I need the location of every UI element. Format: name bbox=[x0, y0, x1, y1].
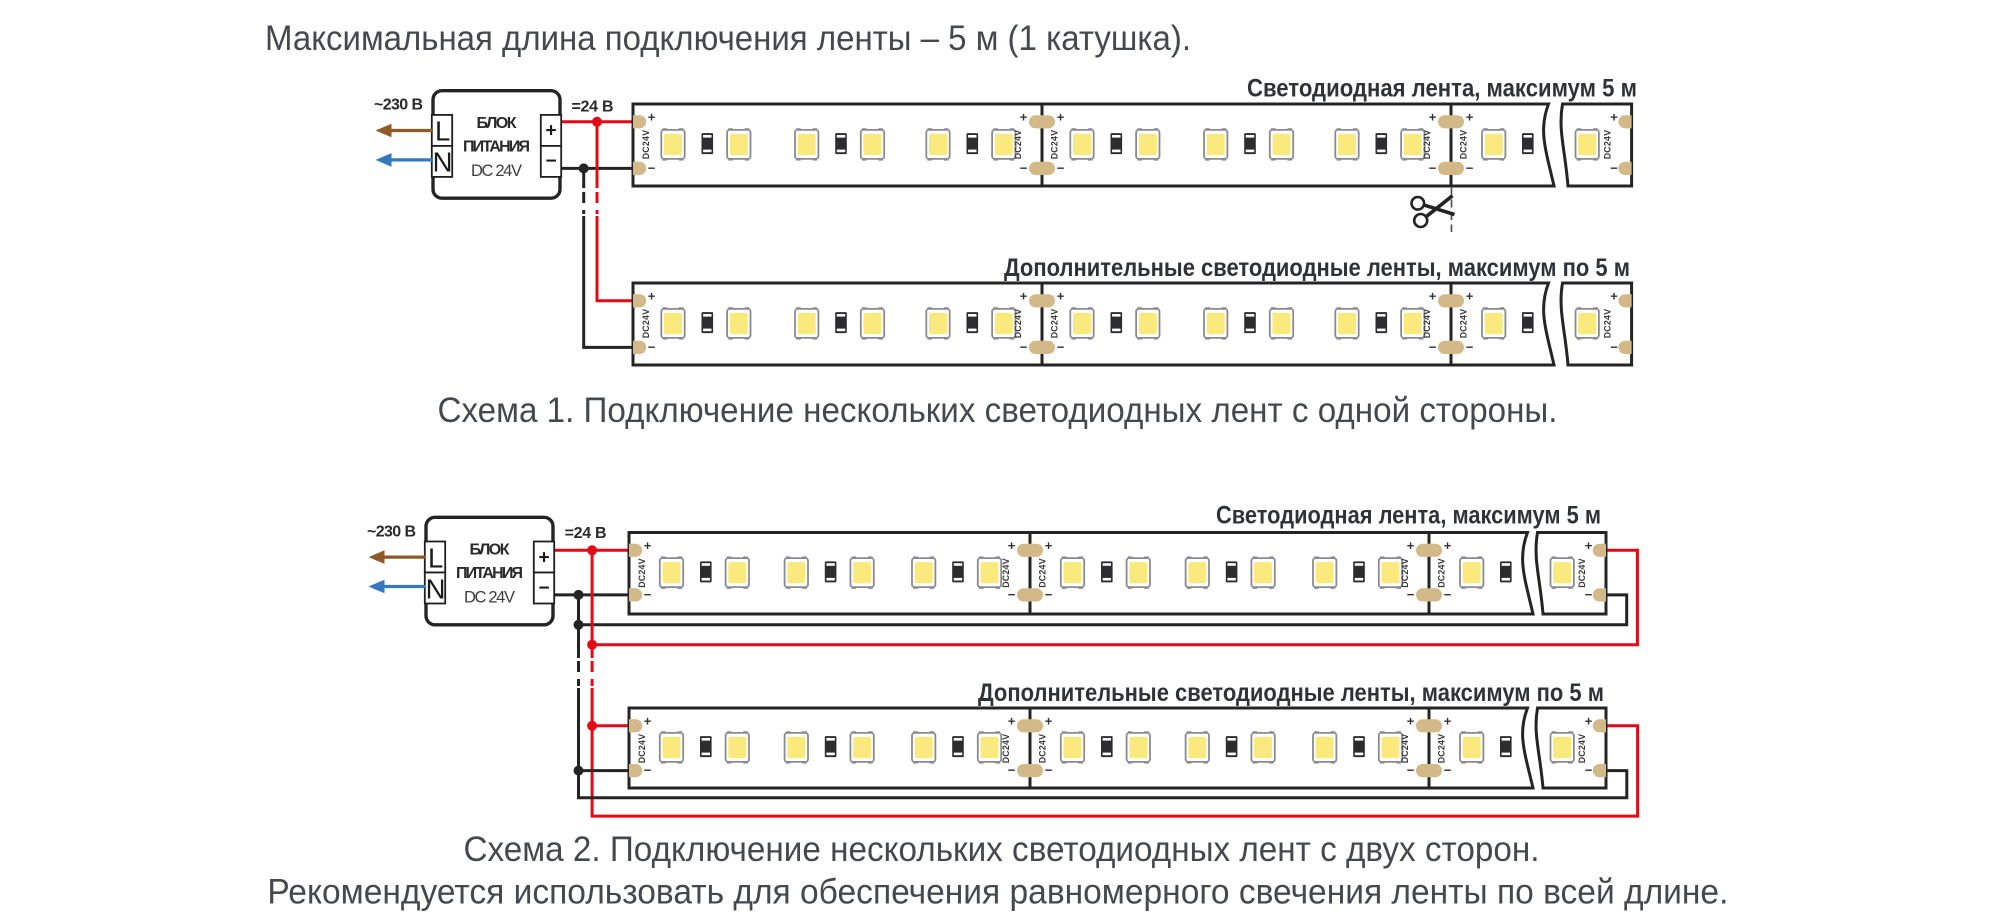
svg-text:−: − bbox=[644, 763, 652, 778]
svg-text:−: − bbox=[648, 160, 656, 175]
svg-text:−: − bbox=[1610, 339, 1618, 354]
svg-text:ПИТАНИЯ: ПИТАНИЯ bbox=[456, 565, 523, 582]
svg-text:DC24V: DC24V bbox=[1400, 734, 1410, 764]
svg-text:L: L bbox=[428, 542, 443, 573]
svg-text:L: L bbox=[435, 116, 450, 147]
svg-text:−: − bbox=[1610, 160, 1618, 175]
svg-text:+: + bbox=[1045, 538, 1053, 553]
svg-text:DC24V: DC24V bbox=[1013, 130, 1023, 160]
svg-text:+: + bbox=[1585, 538, 1593, 553]
svg-text:DC24V: DC24V bbox=[1577, 734, 1587, 764]
svg-text:DC24V: DC24V bbox=[1459, 309, 1469, 339]
svg-text:−: − bbox=[1045, 763, 1053, 778]
svg-text:Рекомендуется использовать для: Рекомендуется использовать для обеспечен… bbox=[267, 873, 1728, 912]
svg-text:−: − bbox=[1407, 587, 1415, 602]
svg-text:Максимальная длина подключения: Максимальная длина подключения ленты – 5… bbox=[265, 19, 1191, 58]
svg-text:~230 В: ~230 В bbox=[367, 523, 416, 540]
svg-text:+: + bbox=[1020, 289, 1028, 304]
svg-text:+: + bbox=[1429, 289, 1437, 304]
svg-text:−: − bbox=[1020, 339, 1028, 354]
svg-text:−: − bbox=[1008, 763, 1016, 778]
svg-text:БЛОК: БЛОК bbox=[477, 115, 517, 132]
svg-text:DC24V: DC24V bbox=[1050, 130, 1060, 160]
svg-text:DC24V: DC24V bbox=[1038, 734, 1048, 764]
svg-text:+: + bbox=[1444, 714, 1452, 729]
svg-text:+: + bbox=[644, 538, 652, 553]
svg-text:ПИТАНИЯ: ПИТАНИЯ bbox=[463, 138, 530, 155]
svg-text:−: − bbox=[545, 151, 556, 172]
svg-text:−: − bbox=[1585, 587, 1593, 602]
svg-text:DC 24V: DC 24V bbox=[464, 589, 515, 607]
svg-text:DC24V: DC24V bbox=[641, 130, 651, 160]
svg-text:DC24V: DC24V bbox=[1437, 558, 1447, 588]
svg-text:+: + bbox=[1444, 538, 1452, 553]
svg-text:−: − bbox=[1466, 339, 1474, 354]
svg-text:DC24V: DC24V bbox=[1577, 558, 1587, 588]
svg-text:Светодиодная лента, максимум 5: Светодиодная лента, максимум 5 м bbox=[1247, 75, 1637, 103]
svg-text:Дополнительные светодиодные ле: Дополнительные светодиодные ленты, макси… bbox=[978, 679, 1604, 707]
svg-text:+: + bbox=[1429, 110, 1437, 125]
svg-text:DC24V: DC24V bbox=[1437, 734, 1447, 764]
svg-text:DC24V: DC24V bbox=[1050, 309, 1060, 339]
svg-text:+: + bbox=[1057, 289, 1065, 304]
svg-text:DC24V: DC24V bbox=[1013, 309, 1023, 339]
svg-text:DC24V: DC24V bbox=[1603, 309, 1613, 339]
svg-text:+: + bbox=[545, 121, 556, 142]
svg-text:DC24V: DC24V bbox=[641, 309, 651, 339]
svg-text:+: + bbox=[1466, 289, 1474, 304]
svg-text:+: + bbox=[648, 289, 656, 304]
svg-text:N: N bbox=[426, 573, 446, 604]
svg-text:DC24V: DC24V bbox=[637, 558, 647, 588]
svg-text:+: + bbox=[1045, 714, 1053, 729]
svg-text:−: − bbox=[1045, 587, 1053, 602]
svg-text:−: − bbox=[1008, 587, 1016, 602]
svg-text:−: − bbox=[1444, 587, 1452, 602]
svg-text:+: + bbox=[1610, 289, 1618, 304]
svg-text:+: + bbox=[1008, 538, 1016, 553]
svg-text:Дополнительные светодиодные ле: Дополнительные светодиодные ленты, макси… bbox=[1004, 254, 1630, 282]
svg-text:+: + bbox=[1466, 110, 1474, 125]
svg-text:Схема 1. Подключение нескольки: Схема 1. Подключение нескольких светодио… bbox=[438, 391, 1558, 430]
svg-text:+: + bbox=[648, 110, 656, 125]
svg-text:−: − bbox=[1429, 160, 1437, 175]
svg-text:Схема 2. Подключение нескольки: Схема 2. Подключение нескольких светодио… bbox=[464, 830, 1540, 869]
svg-text:DC24V: DC24V bbox=[1422, 309, 1432, 339]
svg-text:−: − bbox=[1407, 763, 1415, 778]
svg-text:БЛОК: БЛОК bbox=[470, 542, 510, 559]
svg-text:DC24V: DC24V bbox=[1459, 130, 1469, 160]
svg-text:+: + bbox=[644, 714, 652, 729]
svg-text:−: − bbox=[1057, 160, 1065, 175]
svg-text:+: + bbox=[1407, 538, 1415, 553]
svg-text:~230 В: ~230 В bbox=[374, 97, 423, 114]
svg-text:−: − bbox=[1585, 763, 1593, 778]
svg-text:−: − bbox=[1429, 339, 1437, 354]
svg-text:+: + bbox=[1585, 714, 1593, 729]
svg-text:N: N bbox=[433, 147, 453, 178]
svg-text:−: − bbox=[1057, 339, 1065, 354]
svg-text:=24 В: =24 В bbox=[565, 525, 607, 542]
svg-text:DC24V: DC24V bbox=[637, 734, 647, 764]
svg-text:DC24V: DC24V bbox=[1422, 130, 1432, 160]
svg-text:=24 В: =24 В bbox=[572, 98, 614, 115]
svg-text:Светодиодная лента, максимум 5: Светодиодная лента, максимум 5 м bbox=[1216, 502, 1601, 530]
svg-text:+: + bbox=[1407, 714, 1415, 729]
svg-text:−: − bbox=[648, 339, 656, 354]
svg-text:DC 24V: DC 24V bbox=[471, 162, 522, 180]
svg-text:+: + bbox=[1020, 110, 1028, 125]
svg-text:DC24V: DC24V bbox=[1001, 734, 1011, 764]
svg-text:+: + bbox=[1610, 110, 1618, 125]
svg-text:+: + bbox=[538, 547, 549, 568]
svg-text:DC24V: DC24V bbox=[1038, 558, 1048, 588]
svg-text:−: − bbox=[538, 578, 549, 599]
svg-text:−: − bbox=[1020, 160, 1028, 175]
svg-text:−: − bbox=[1444, 763, 1452, 778]
svg-text:−: − bbox=[644, 587, 652, 602]
svg-text:DC24V: DC24V bbox=[1603, 130, 1613, 160]
svg-text:−: − bbox=[1466, 160, 1474, 175]
svg-text:+: + bbox=[1008, 714, 1016, 729]
svg-text:DC24V: DC24V bbox=[1400, 558, 1410, 588]
svg-text:DC24V: DC24V bbox=[1001, 558, 1011, 588]
svg-text:+: + bbox=[1057, 110, 1065, 125]
